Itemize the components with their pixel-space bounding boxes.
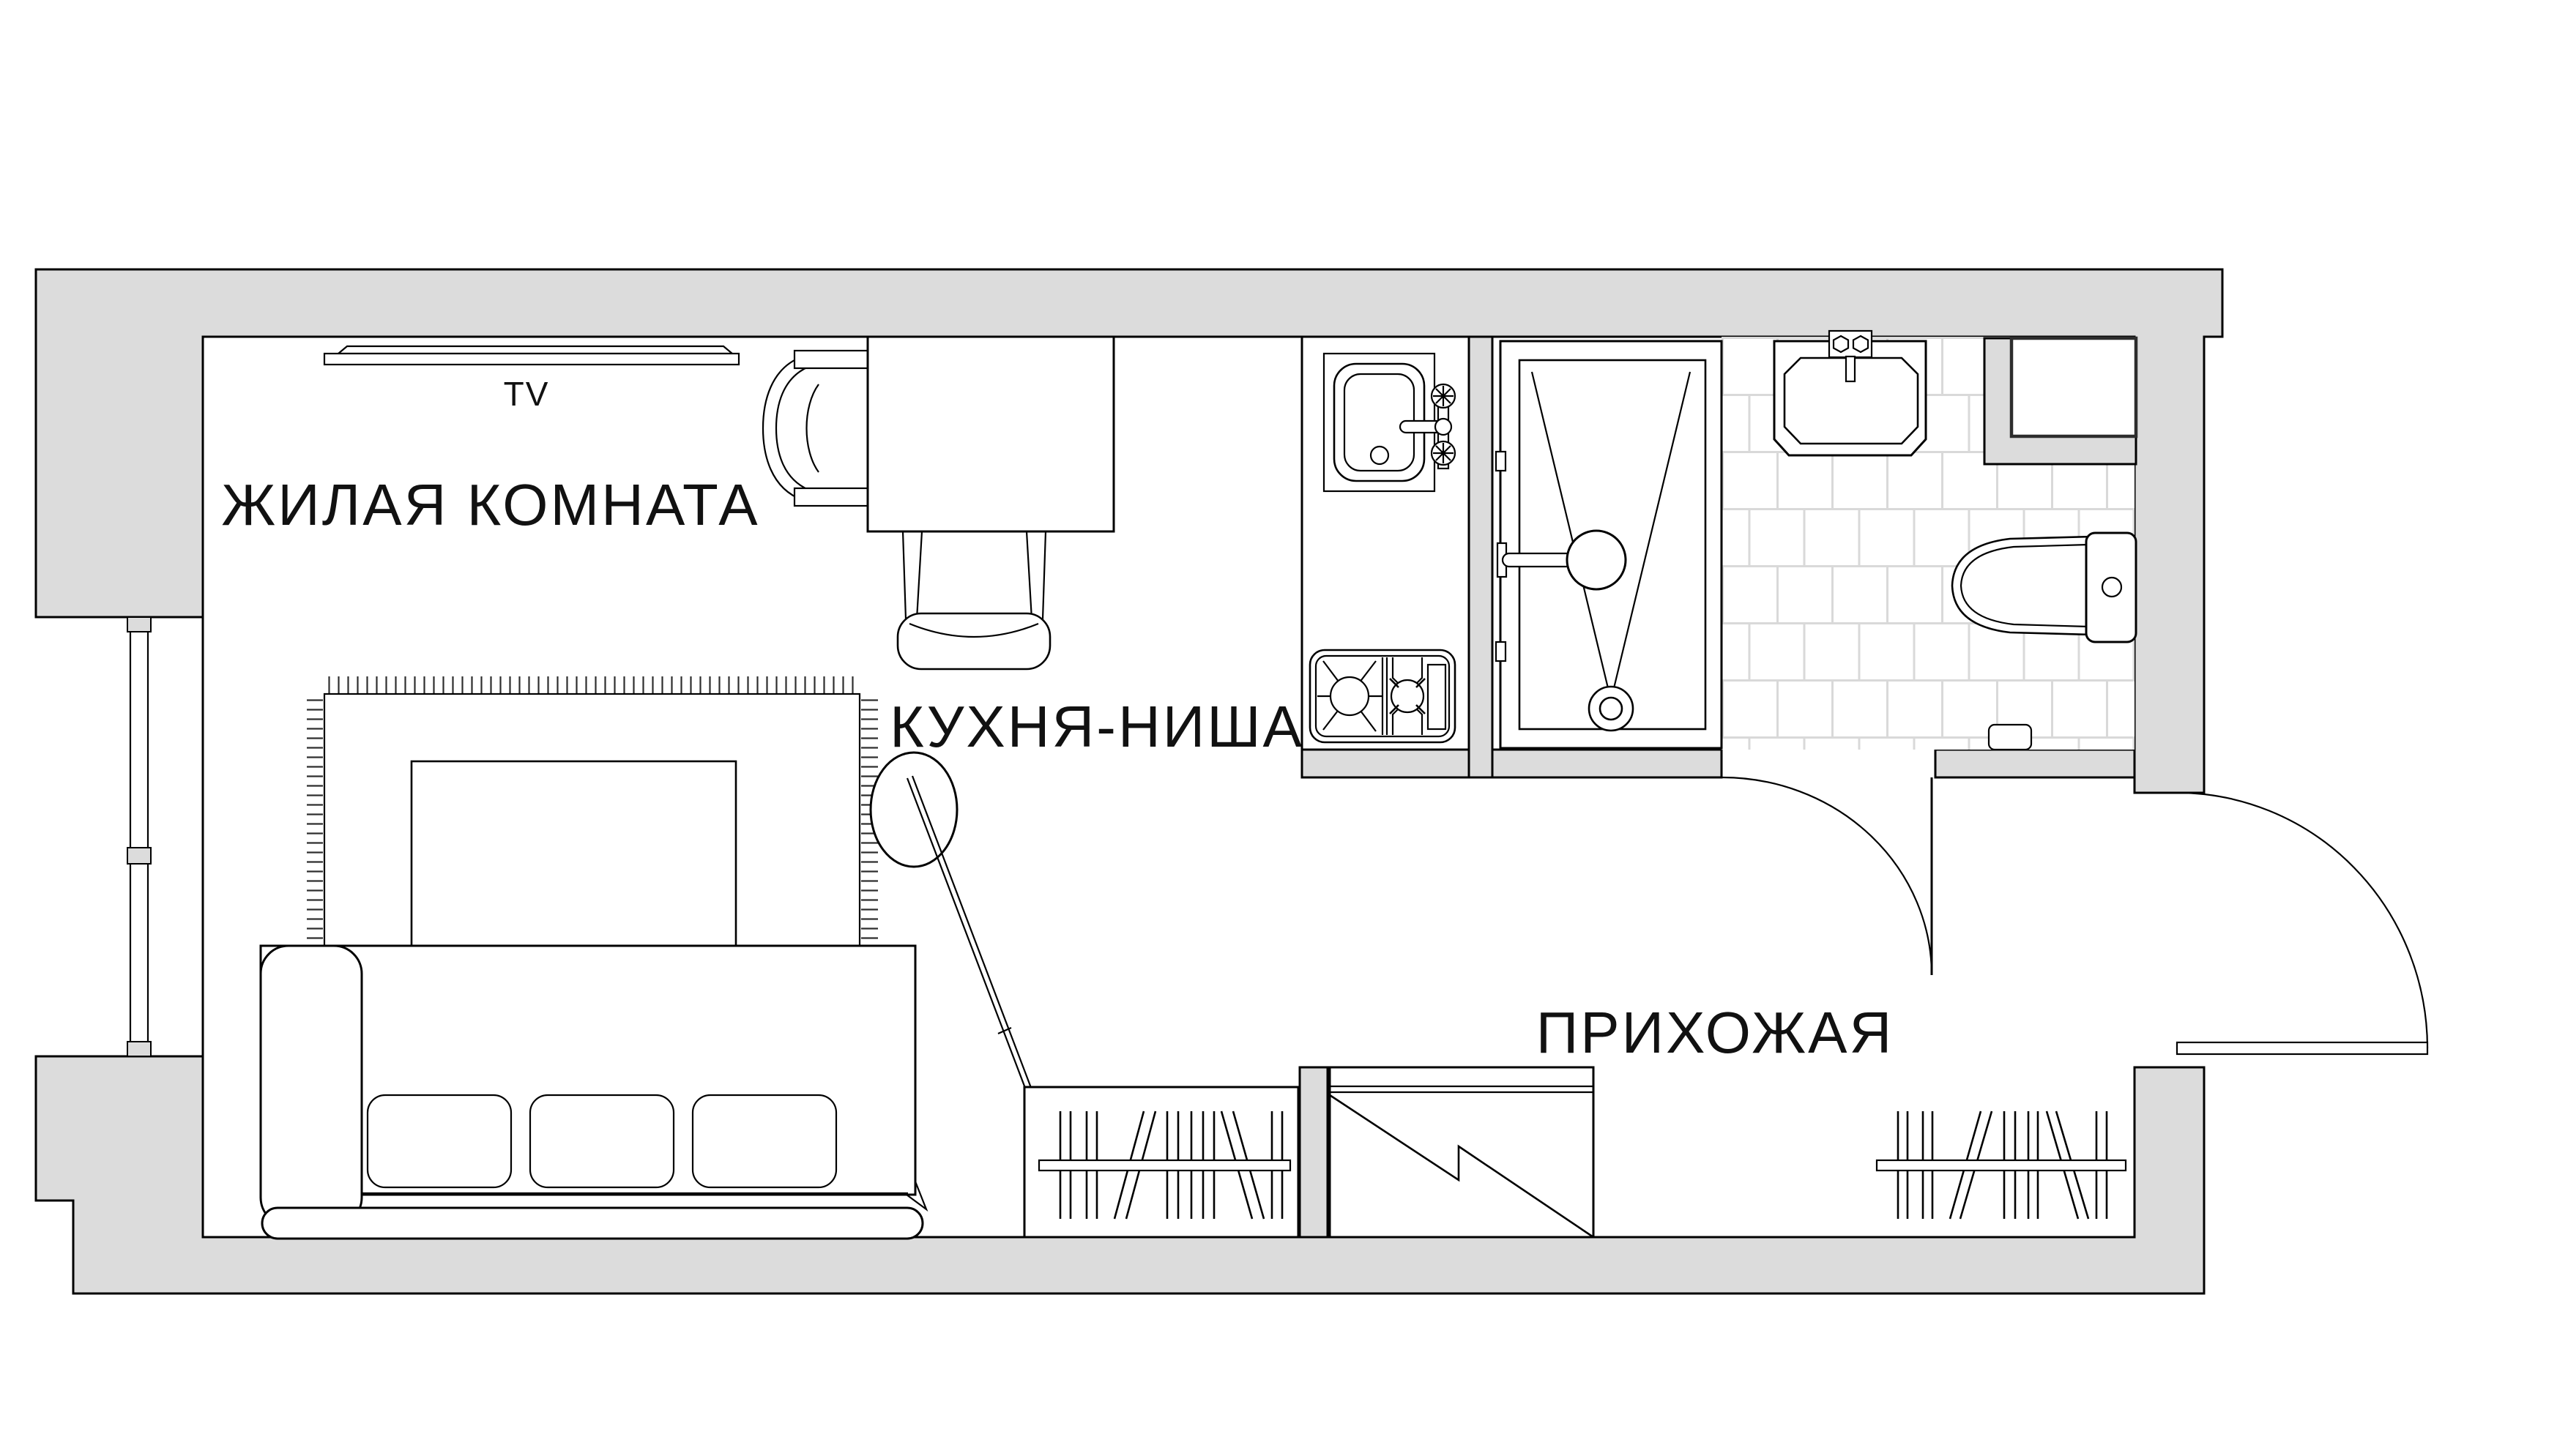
toilet	[1952, 533, 2136, 642]
wall-kitchen-bottom	[1302, 750, 1469, 777]
faucet-handle-icon	[1432, 384, 1455, 408]
floor-drain-box	[1989, 725, 2031, 750]
faucet-handle-icon	[1853, 336, 1868, 352]
shower-valve	[1496, 452, 1506, 471]
door-swing-arc	[1722, 777, 1932, 975]
window-mullion	[127, 848, 151, 864]
chair	[898, 531, 1050, 669]
sofa-cushion	[693, 1095, 836, 1187]
bathroom	[1496, 331, 2136, 975]
door-swing-arc	[2177, 793, 2427, 1048]
sliding-closet	[1330, 1067, 1593, 1237]
faucet-joint	[1435, 419, 1451, 435]
cooktop	[1310, 650, 1455, 742]
sofa-base	[262, 1208, 923, 1239]
armchair	[763, 351, 872, 506]
shower	[1496, 341, 1722, 748]
window	[127, 617, 203, 1056]
sofa-cushion	[368, 1095, 511, 1187]
tv	[324, 346, 739, 365]
entrance-door	[2177, 793, 2427, 1054]
window-mullion	[127, 617, 151, 632]
kitchen-label: КУХНЯ-НИША	[890, 694, 1304, 759]
faucet-handle-icon	[1834, 336, 1848, 352]
shower-head-icon	[1567, 531, 1626, 589]
washbasin-spout	[1846, 356, 1855, 381]
dining-table	[868, 337, 1114, 531]
toilet-cistern	[2086, 533, 2136, 642]
sofa-cushion	[530, 1095, 674, 1187]
kitchen-sink	[1324, 354, 1455, 491]
shower-arm	[1503, 553, 1573, 567]
lamp-shade-icon	[871, 753, 957, 867]
floor-plan: ЖИЛАЯ КОМНАТА КУХНЯ-НИША ПРИХОЖАЯ TV	[0, 0, 2568, 1456]
wall-pier-closets	[1300, 1067, 1328, 1237]
burner-icon	[1330, 677, 1369, 715]
sofa-armrest	[261, 946, 362, 1225]
door-leaf	[2177, 1042, 2427, 1054]
bathroom-door	[1722, 777, 1932, 975]
washbasin	[1774, 331, 1926, 455]
window-mullion	[127, 1042, 151, 1056]
coat-rack	[1877, 1111, 2126, 1219]
living-room-label: ЖИЛАЯ КОМНАТА	[221, 472, 759, 537]
hallway-label: ПРИХОЖАЯ	[1536, 1000, 1894, 1065]
toilet-bowl	[1952, 537, 2093, 635]
utility-niche	[2011, 338, 2136, 436]
window-glazing	[130, 617, 148, 1056]
wardrobe-with-clothes	[1024, 1087, 1298, 1237]
hanging-rail	[1877, 1160, 2126, 1171]
wall-bath-bottom-right	[1935, 750, 2135, 777]
kitchen-niche	[1302, 337, 1455, 750]
wall-kitchen-bath-divider	[1469, 337, 1492, 777]
shower-valve	[1496, 642, 1506, 661]
wall-bath-bottom-left	[1492, 750, 1722, 777]
hanging-rail	[1039, 1160, 1290, 1171]
faucet-handle-icon	[1432, 441, 1455, 465]
sofa-bed	[261, 946, 926, 1239]
tv-label: TV	[504, 375, 550, 413]
